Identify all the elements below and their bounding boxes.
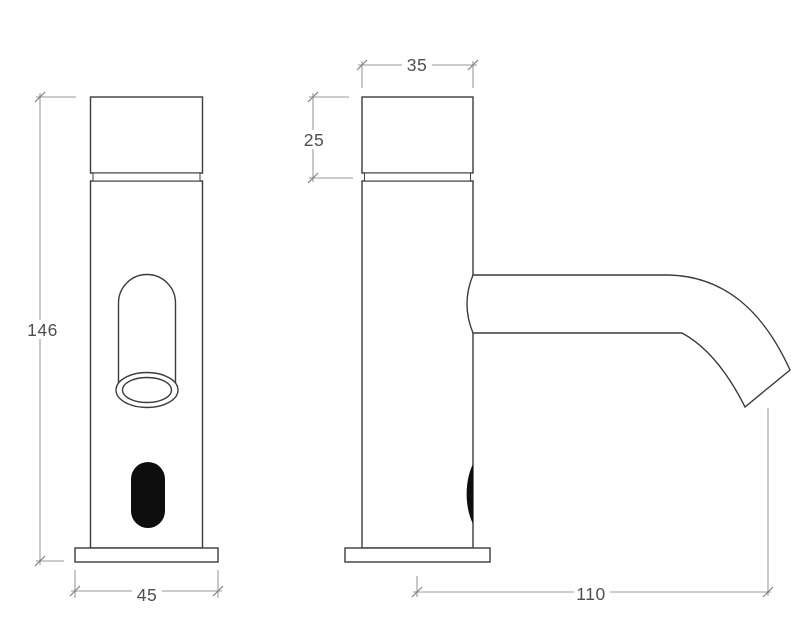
side-spout <box>467 275 790 407</box>
front-sensor-window <box>131 462 165 528</box>
side-body <box>362 181 473 548</box>
dim-capheight-label: 25 <box>304 130 324 150</box>
dim-topwidth-label: 35 <box>407 55 427 75</box>
faucet-technical-drawing: 146 45 35 25 110 <box>0 0 800 630</box>
side-view <box>345 97 790 562</box>
dim-height-label: 146 <box>27 320 58 340</box>
side-cap <box>362 97 473 173</box>
side-cap-groove <box>365 173 471 181</box>
front-cap-groove <box>93 173 200 181</box>
side-base-plate <box>345 548 490 562</box>
front-base-plate <box>75 548 218 562</box>
drawing-canvas: 146 45 35 25 110 <box>0 0 800 630</box>
front-view <box>75 97 218 562</box>
front-cap <box>91 97 203 173</box>
dim-basewidth-label: 45 <box>137 585 157 605</box>
dim-reach-label: 110 <box>576 584 605 604</box>
